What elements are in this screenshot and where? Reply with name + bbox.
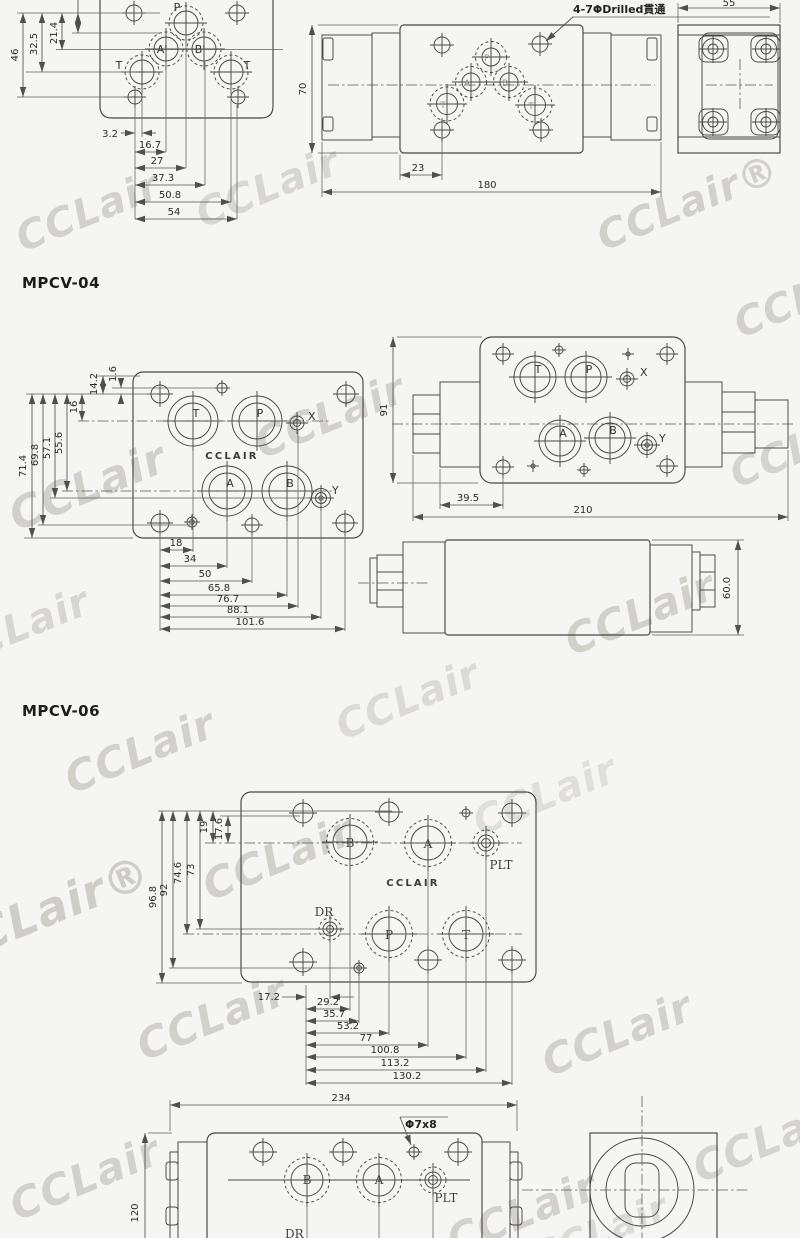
dim-210: 210 <box>573 505 592 516</box>
dim-3-2: 3.2 <box>102 129 118 140</box>
port-label-y: Y <box>658 432 666 445</box>
port-label-t: T <box>462 928 470 942</box>
dim-91: 91 <box>379 404 390 417</box>
dim-18: 18 <box>170 538 183 549</box>
dim-65-8: 65.8 <box>208 583 230 594</box>
port-label-a: A <box>464 79 471 89</box>
catalog-page: CCLair CCLair CCLair® CCLair CCLair CCLa… <box>0 0 800 1238</box>
dim-180: 180 <box>477 180 496 191</box>
port-label-x: X <box>640 366 648 379</box>
dim-120: 120 <box>130 1203 141 1222</box>
dim-74-6: 74.6 <box>173 862 184 884</box>
dim-130-2: 130.2 <box>393 1071 422 1082</box>
valve-top-front-view: P A B T T 4-7ΦDrilled貫通 70 23 180 <box>298 3 770 197</box>
dim-29-2: 29.2 <box>317 997 339 1008</box>
port-label-plt: PLT <box>434 1191 457 1205</box>
port-label-t-right: T <box>243 59 251 72</box>
dim-57-1: 57.1 <box>42 437 53 459</box>
port-label-t: T <box>192 407 200 420</box>
port-label-t: T <box>534 363 542 376</box>
dim-54: 54 <box>168 207 181 218</box>
dim-70: 70 <box>298 83 309 96</box>
dim-16: 16 <box>69 401 80 414</box>
dim-60-0: 60.0 <box>722 577 733 599</box>
dim-46: 46 <box>10 49 21 62</box>
port-label-t-left: T <box>115 59 123 72</box>
dim-88-1: 88.1 <box>227 605 249 616</box>
dim-50: 50 <box>199 569 212 580</box>
dim-17-2: 17.2 <box>258 992 280 1003</box>
port-label-a: A <box>374 1173 384 1187</box>
dim-96-8: 96.8 <box>148 886 159 908</box>
valve-top-end-view: 55 <box>678 0 780 153</box>
dim-21-4: 21.4 <box>49 22 60 44</box>
dim-55: 55 <box>723 0 736 9</box>
mpcv06-front-view: 234 B A PLT Φ7x8 <box>130 1093 522 1238</box>
dim-39-5: 39.5 <box>457 493 479 504</box>
section-title-mpcv06: MPCV-06 <box>22 702 100 720</box>
port-label-dr: DR <box>315 905 335 919</box>
mpcv06-end-view <box>522 1096 748 1238</box>
dim-17-6: 17.6 <box>214 818 225 840</box>
port-label-p: P <box>586 363 593 376</box>
dim-55-6: 55.6 <box>54 432 65 454</box>
dim-69-8: 69.8 <box>30 444 41 466</box>
hole-note: Φ7x8 <box>405 1118 437 1131</box>
drilled-note: 4-7ΦDrilled貫通 <box>573 3 665 16</box>
dim-73: 73 <box>186 864 197 877</box>
port-label-p: P <box>257 407 264 420</box>
dim-34: 34 <box>184 554 197 565</box>
port-label-a: A <box>559 427 567 440</box>
port-label-p: P <box>174 1 181 14</box>
brand-text: CCLAIR <box>386 878 439 889</box>
dim-16-7: 16.7 <box>139 140 161 151</box>
port-label-b: B <box>286 477 294 490</box>
port-label-b: B <box>609 424 617 437</box>
dim-71-4: 71.4 <box>18 455 29 477</box>
dim-32-5: 32.5 <box>29 33 40 55</box>
port-label-a: A <box>423 837 433 851</box>
port-label-p: P <box>484 54 490 64</box>
port-label-y: Y <box>331 484 339 497</box>
dim-100-8: 100.8 <box>371 1045 400 1056</box>
section-title-mpcv04: MPCV-04 <box>22 274 100 292</box>
dim-101-6: 101.6 <box>236 617 265 628</box>
dim-14-2: 14.2 <box>89 373 100 395</box>
port-label-b: B <box>303 1173 312 1187</box>
dim-1-6: 1.6 <box>108 366 119 382</box>
mpcv06-plate-view: B A PLT DR P T CCLAIR 96.8 92 74.6 <box>148 792 536 1085</box>
dim-19: 19 <box>199 821 210 834</box>
partial-dr-label: DR <box>285 1227 305 1238</box>
valve-top-plate-view: P A' B' T T 46 32.5 21.4 <box>10 0 283 219</box>
port-label-a: A <box>226 477 234 490</box>
dim-113-2: 113.2 <box>381 1058 410 1069</box>
dim-37-3: 37.3 <box>152 173 174 184</box>
port-label-b: B <box>502 79 508 89</box>
dim-77: 77 <box>360 1033 373 1044</box>
dim-76-7: 76.7 <box>217 594 239 605</box>
port-label-plt: PLT <box>489 858 512 872</box>
port-label-t-right: T <box>527 102 534 112</box>
drawing-canvas: P A' B' T T 46 32.5 21.4 <box>0 0 800 1238</box>
mpcv04-plate-view: T P X A B Y CCLAIR 71.4 69 <box>18 366 363 631</box>
dim-23: 23 <box>412 163 425 174</box>
brand-text: CCLAIR <box>205 451 258 462</box>
dim-234: 234 <box>331 1093 350 1104</box>
port-label-p: P <box>385 928 393 942</box>
mpcv04-front-view: T P X A B Y 91 39.5 210 <box>379 337 795 521</box>
dim-35-7: 35.7 <box>323 1009 345 1020</box>
port-label-t-left: T <box>439 101 446 111</box>
dim-92: 92 <box>159 884 170 897</box>
dim-50-8: 50.8 <box>159 190 181 201</box>
dim-27: 27 <box>151 156 164 167</box>
mpcv04-side-view: 60.0 <box>358 540 744 635</box>
dim-53-2: 53.2 <box>337 1021 359 1032</box>
